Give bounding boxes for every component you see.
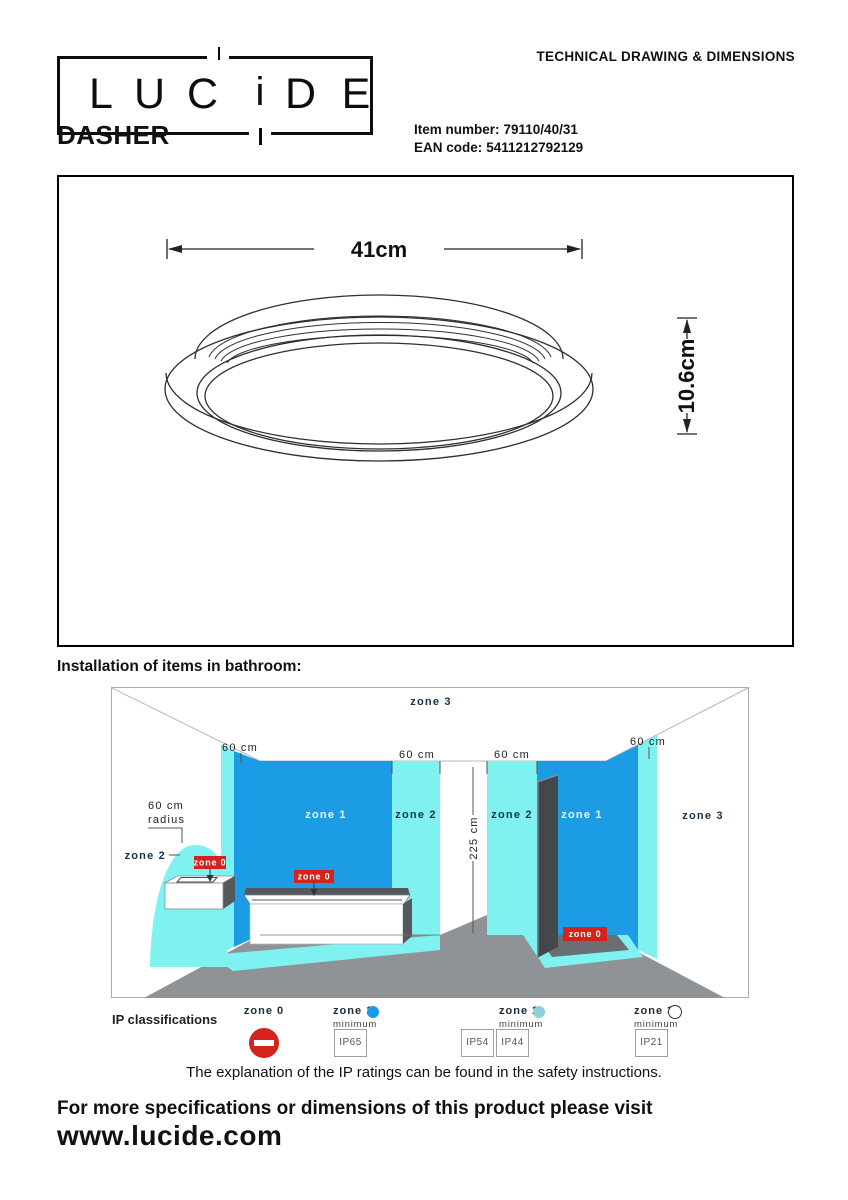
lamp-outline: [165, 295, 593, 461]
no-entry-icon: [249, 1028, 279, 1058]
zone2-shower-label: zone 2: [491, 809, 532, 821]
dim-225cm-label: 225 cm: [468, 816, 480, 859]
zone2-tub-label: zone 2: [395, 809, 436, 821]
logo-letter: L: [86, 70, 116, 119]
footer-website: www.lucide.com: [57, 1120, 282, 1152]
dim-60cm-left: 60 cm: [222, 742, 258, 754]
height-arrow-top: [683, 319, 691, 333]
dim-60cm-radius-line1: 60 cm: [148, 800, 184, 812]
product-name: DASHER: [57, 120, 170, 151]
spec-sheet-page: L U C i D E TECHNICAL DRAWING & DIMENSIO…: [0, 0, 848, 1200]
zone2-basin-label: zone 2: [125, 850, 166, 862]
zone2-sidewall-strip-right: [638, 735, 657, 959]
dim-60cm-tub: 60 cm: [399, 749, 435, 761]
logo-letter: D: [285, 70, 315, 119]
zone1-dot-icon: [367, 1006, 379, 1018]
lamp-technical-drawing: 41cm 10.6cm: [59, 177, 788, 641]
ean-row: EAN code:5411212792129: [414, 139, 587, 157]
ean-value: 5411212792129: [486, 140, 583, 155]
item-number-row: Item number:79110/40/31: [414, 121, 587, 139]
zone0-badge-text: zone 0: [298, 872, 331, 882]
item-number-label: Item number:: [414, 122, 500, 137]
zone0-badge-text: zone 0: [194, 858, 227, 868]
zone2-backwall-strip-shower: [487, 761, 537, 935]
bathroom-section-title: Installation of items in bathroom:: [57, 658, 302, 676]
bathroom-zones-diagram: 225 cm 60 cm 60 cm 60 cm 60 cm 60 cm rad…: [111, 687, 749, 998]
height-arrow-bottom: [683, 419, 691, 433]
dim-60cm-shower: 60 cm: [494, 749, 530, 761]
zone2-dot-icon: [533, 1006, 545, 1018]
zone1-shower-label: zone 1: [561, 809, 602, 821]
legend-zone0-label: zone 0: [236, 1005, 292, 1017]
ip65-rating-box: IP65: [334, 1029, 367, 1057]
zone0-badge-text: zone 0: [569, 929, 602, 939]
ip21-rating-box: IP21: [635, 1029, 668, 1057]
dim-60cm-radius-line2: radius: [148, 814, 185, 826]
washbasin: [165, 876, 235, 909]
ip-legend-title: IP classifications: [112, 1012, 217, 1027]
ip44-rating-box: IP44: [496, 1029, 529, 1057]
width-dimension-label: 41cm: [351, 237, 407, 262]
logo-letter: i: [245, 70, 275, 115]
logo-letter: C: [187, 70, 217, 119]
document-title: TECHNICAL DRAWING & DIMENSIONS: [470, 49, 795, 64]
zone3-circle-icon: [668, 1005, 682, 1019]
zone1-sidewall-strip-right: [606, 745, 638, 950]
technical-drawing-frame: 41cm 10.6cm: [57, 175, 794, 647]
dim-60cm-right: 60 cm: [630, 736, 666, 748]
zone3-ceiling-label: zone 3: [410, 696, 451, 708]
footer-line: For more specifications or dimensions of…: [57, 1098, 652, 1120]
logo-letter: E: [341, 70, 371, 119]
no-entry-bar: [254, 1040, 274, 1046]
product-meta: Item number:79110/40/31 EAN code:5411212…: [414, 121, 587, 157]
logo-accent-mark: [218, 47, 220, 60]
zone1-tub-label: zone 1: [305, 809, 346, 821]
logo-letter: U: [134, 70, 164, 119]
item-number-value: 79110/40/31: [504, 122, 578, 137]
zone0-badge-shower: zone 0: [563, 927, 607, 941]
shower-panel: [537, 775, 558, 958]
logo-i-stem: [259, 128, 262, 145]
ip-note: The explanation of the IP ratings can be…: [94, 1064, 754, 1081]
width-arrow-right: [567, 245, 581, 253]
width-arrow-left: [168, 245, 182, 253]
bathtub: [244, 888, 412, 944]
ean-label: EAN code:: [414, 140, 482, 155]
ip54-rating-box: IP54: [461, 1029, 494, 1057]
zone3-wall-label: zone 3: [682, 810, 723, 822]
height-dimension-label: 10.6cm: [674, 339, 699, 414]
